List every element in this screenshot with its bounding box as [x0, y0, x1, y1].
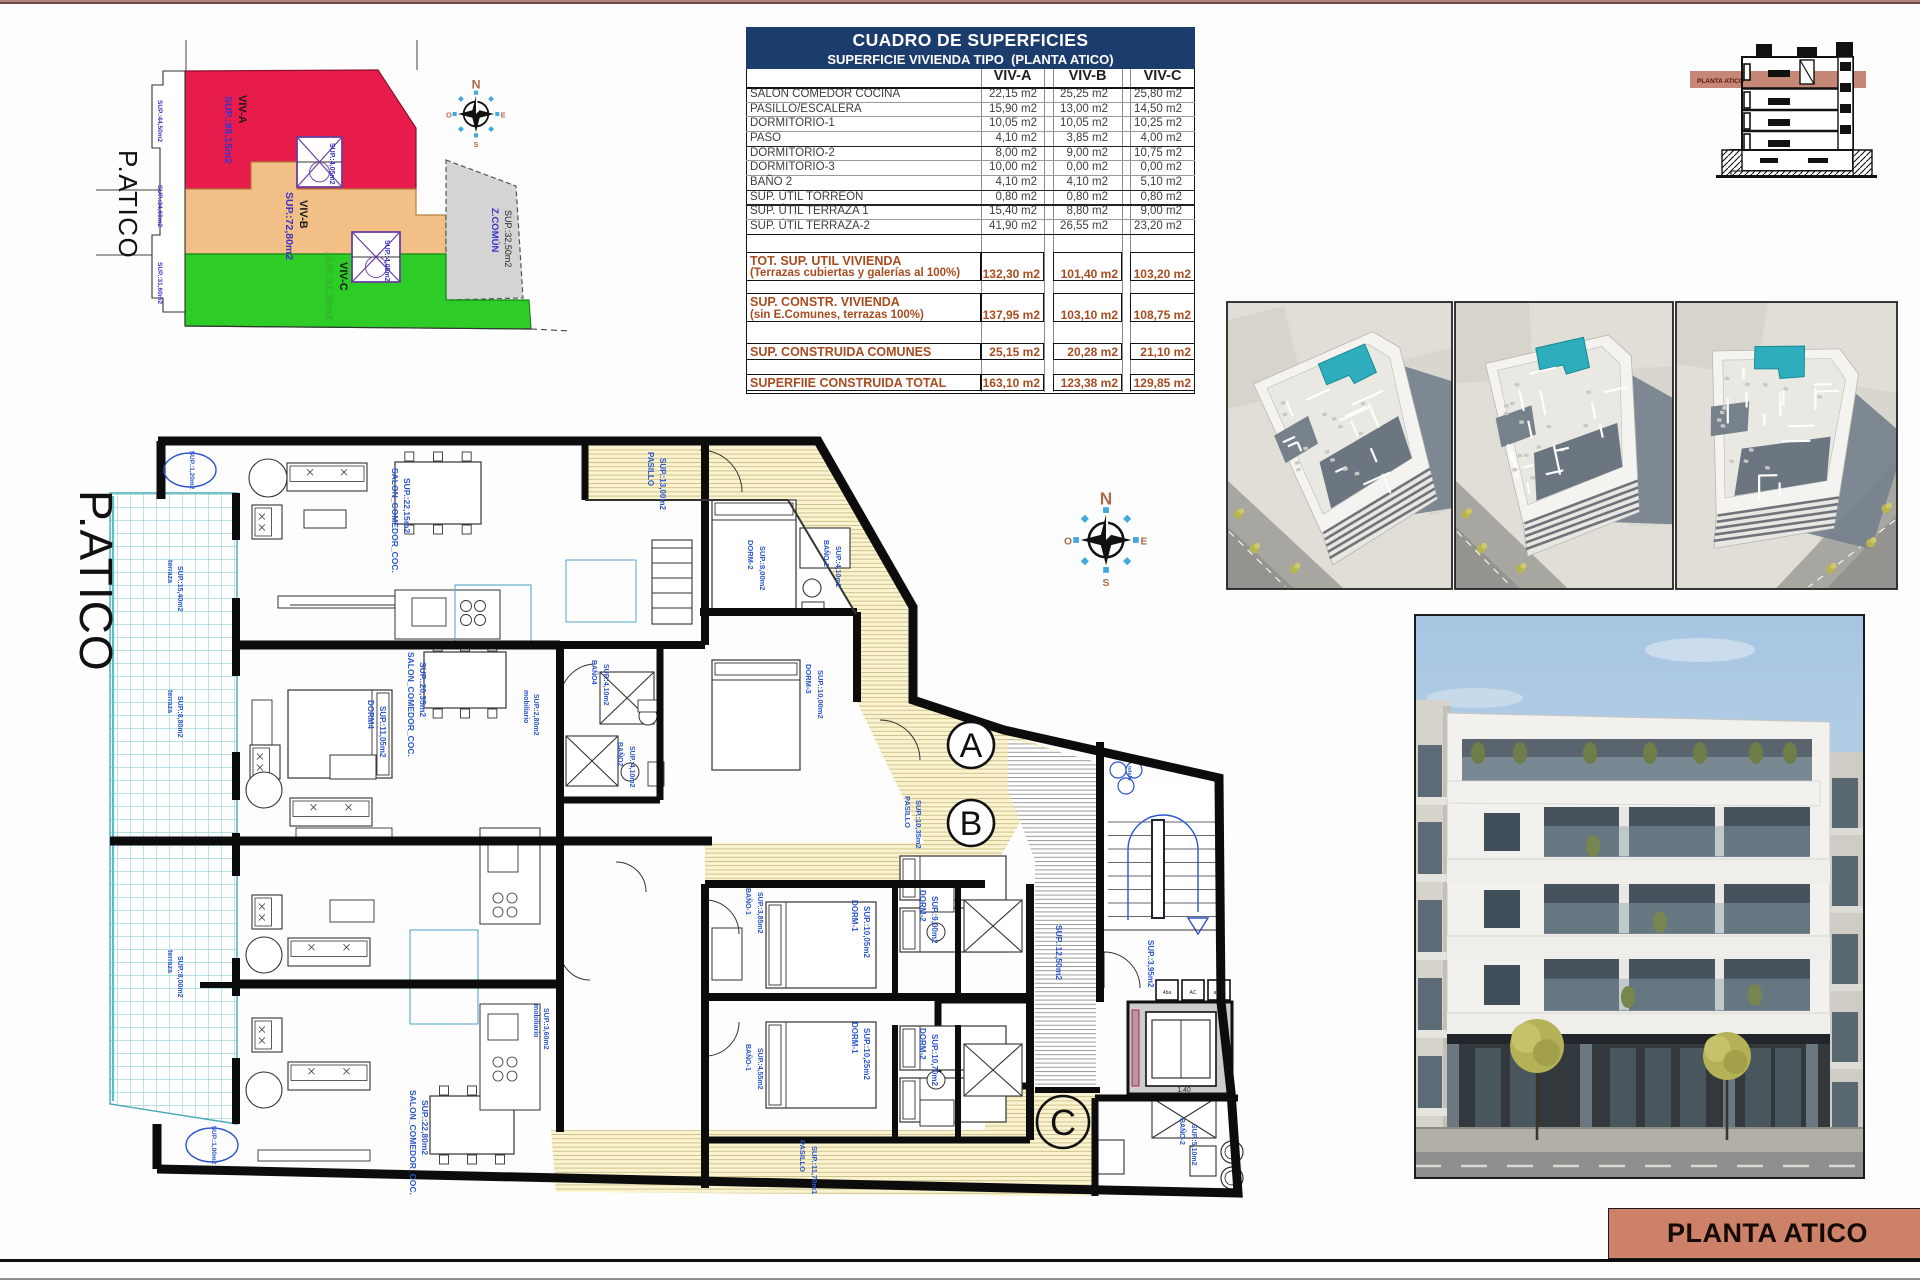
- svg-text:E: E: [1140, 537, 1147, 548]
- svg-text:4ba: 4ba: [1163, 990, 1172, 996]
- svg-text:SUP.:11,70m1: SUP.:11,70m1: [810, 1146, 819, 1194]
- svg-text:SUP.:9,00m2: SUP.:9,00m2: [930, 896, 939, 944]
- svg-text:Z.COMÚN: Z.COMÚN: [489, 208, 501, 252]
- svg-text:S: S: [474, 140, 479, 149]
- svg-text:SALON_COMEDOR_COC.: SALON_COMEDOR_COC.: [390, 468, 400, 573]
- svg-text:PASILLO: PASILLO: [903, 796, 912, 828]
- svg-text:PLANTA ATICO: PLANTA ATICO: [1697, 78, 1744, 85]
- svg-text:SUP.:1,00m2: SUP.:1,00m2: [210, 1126, 217, 1165]
- svg-text:C: C: [1050, 1102, 1076, 1143]
- svg-text:BAÑO-2: BAÑO-2: [1178, 1118, 1187, 1145]
- svg-text:SUP.:3,95m2: SUP.:3,95m2: [1146, 940, 1155, 988]
- svg-text:SUP.:12,50m2: SUP.:12,50m2: [1054, 925, 1064, 980]
- svg-text:SUP.:8,00m2: SUP.:8,00m2: [176, 956, 183, 998]
- svg-text:SUP.:3,85m2: SUP.:3,85m2: [756, 892, 763, 934]
- svg-text:DORM-1: DORM-1: [850, 900, 859, 932]
- svg-text:SUP.:8,00m2: SUP.:8,00m2: [758, 546, 767, 590]
- svg-text:SUP.:4,55m2: SUP.:4,55m2: [756, 1048, 763, 1090]
- svg-text:DORM-3: DORM-3: [804, 664, 813, 694]
- svg-text:telefo: telefo: [1126, 766, 1132, 781]
- svg-text:O: O: [1064, 537, 1072, 548]
- svg-text:SUP.:98,15m2: SUP.:98,15m2: [222, 96, 234, 164]
- svg-text:E: E: [501, 110, 506, 119]
- svg-text:SUP.:2,80m2: SUP.:2,80m2: [532, 694, 539, 736]
- svg-text:terraza: terraza: [166, 560, 173, 583]
- svg-text:A: A: [960, 727, 983, 765]
- svg-text:SUP.:10,05m2: SUP.:10,05m2: [862, 906, 871, 958]
- svg-text:N: N: [472, 78, 481, 92]
- svg-text:SUP.:10,25m2: SUP.:10,25m2: [862, 1028, 871, 1080]
- svg-text:VIV-C: VIV-C: [337, 262, 349, 291]
- svg-text:BAÑO-2: BAÑO-2: [822, 540, 831, 567]
- svg-text:mobiliario: mobiliario: [532, 1004, 539, 1037]
- svg-text:SUP.:13,00m2: SUP.:13,00m2: [658, 458, 667, 510]
- svg-text:SUP.:5,10m2: SUP.:5,10m2: [1190, 1124, 1197, 1166]
- svg-text:SUP.:44,50m2: SUP.:44,50m2: [156, 100, 163, 143]
- svg-text:SUP.:4,10m2: SUP.:4,10m2: [602, 664, 609, 706]
- svg-text:SUP.:4,10m2: SUP.:4,10m2: [834, 546, 841, 588]
- svg-text:SUP.:10,35m2: SUP.:10,35m2: [914, 800, 923, 849]
- svg-text:SUP.:10,70m2: SUP.:10,70m2: [930, 1034, 939, 1086]
- svg-text:SUP.:10,00m2: SUP.:10,00m2: [816, 670, 825, 719]
- svg-text:DORM-2: DORM-2: [918, 890, 927, 922]
- svg-text:BAÑO2: BAÑO2: [616, 742, 625, 767]
- svg-text:SUP.:81,35m2: SUP.:81,35m2: [323, 252, 335, 320]
- svg-text:terraza: terraza: [166, 690, 173, 713]
- svg-text:SUP.:34,60m2: SUP.:34,60m2: [156, 185, 163, 228]
- svg-text:P.ATICO: P.ATICO: [113, 150, 143, 259]
- svg-text:terraza: terraza: [166, 950, 173, 973]
- svg-text:SUP.:32,50m2: SUP.:32,50m2: [503, 210, 513, 267]
- svg-text:BAÑO-1: BAÑO-1: [744, 1044, 753, 1071]
- svg-text:VIV-A: VIV-A: [236, 95, 248, 124]
- svg-text:SUP.:15,40m2: SUP.:15,40m2: [176, 566, 183, 612]
- svg-text:B: B: [960, 805, 983, 843]
- svg-text:SUP.:4,10m2: SUP.:4,10m2: [628, 746, 635, 788]
- svg-text:mobiliario: mobiliario: [522, 690, 529, 723]
- svg-text:S: S: [1103, 578, 1110, 589]
- svg-text:SALON_COMEDOR_COC.: SALON_COMEDOR_COC.: [408, 1090, 418, 1195]
- svg-text:PASILLO: PASILLO: [798, 1140, 807, 1172]
- svg-text:P.ATICO: P.ATICO: [70, 490, 122, 672]
- svg-text:DORM4: DORM4: [366, 700, 375, 729]
- svg-text:SALON_COMEDOR_COC.: SALON_COMEDOR_COC.: [406, 652, 416, 757]
- svg-text:SUP.:22,15m2: SUP.:22,15m2: [402, 478, 412, 533]
- svg-text:SUP.:31,60m2: SUP.:31,60m2: [156, 262, 163, 305]
- svg-text:DORM-2: DORM-2: [918, 1028, 927, 1060]
- svg-text:SUP.:4,05m2: SUP.:4,05m2: [328, 143, 335, 185]
- svg-text:SUP.:20,35m2: SUP.:20,35m2: [418, 662, 428, 717]
- svg-text:DORM-1: DORM-1: [850, 1022, 859, 1054]
- svg-text:SUP.:22,80m2: SUP.:22,80m2: [420, 1100, 430, 1155]
- svg-text:VIV-B: VIV-B: [297, 200, 309, 229]
- svg-text:O: O: [446, 110, 452, 119]
- svg-text:BAÑO-1: BAÑO-1: [744, 888, 753, 915]
- svg-text:SUP.:8,80m2: SUP.:8,80m2: [176, 696, 183, 738]
- svg-text:SUP.:11,05m2: SUP.:11,05m2: [378, 706, 387, 758]
- svg-text:SUP.:3,60m2: SUP.:3,60m2: [542, 1008, 549, 1050]
- svg-text:N: N: [1100, 488, 1112, 508]
- svg-text:SUP.:1,20m2: SUP.:1,20m2: [188, 451, 195, 490]
- svg-text:1,40: 1,40: [1177, 1087, 1191, 1094]
- svg-text:AC: AC: [1190, 990, 1197, 996]
- svg-text:BAÑO4: BAÑO4: [590, 660, 599, 685]
- svg-text:DORM-2: DORM-2: [746, 540, 755, 570]
- svg-text:PASILLO: PASILLO: [646, 452, 655, 486]
- svg-text:SUP.:72,80m2: SUP.:72,80m2: [283, 192, 295, 260]
- svg-text:SUP.:4,05m2: SUP.:4,05m2: [383, 240, 390, 282]
